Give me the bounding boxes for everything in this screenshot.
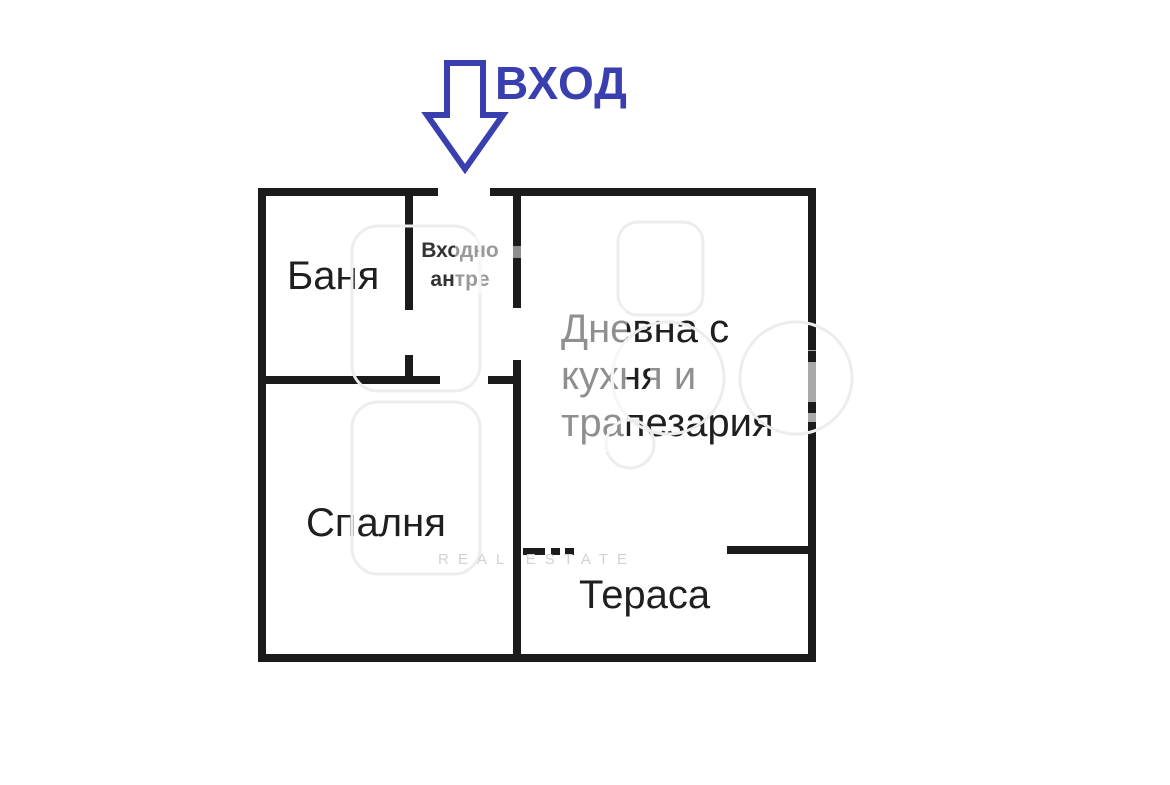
floor-plan-canvas: ВХОД Баня Входно антре Дневна с кухня и … xyxy=(0,0,1170,785)
watermark-text: REAL ESTATE xyxy=(438,551,636,568)
watermark-logo xyxy=(0,0,1170,785)
